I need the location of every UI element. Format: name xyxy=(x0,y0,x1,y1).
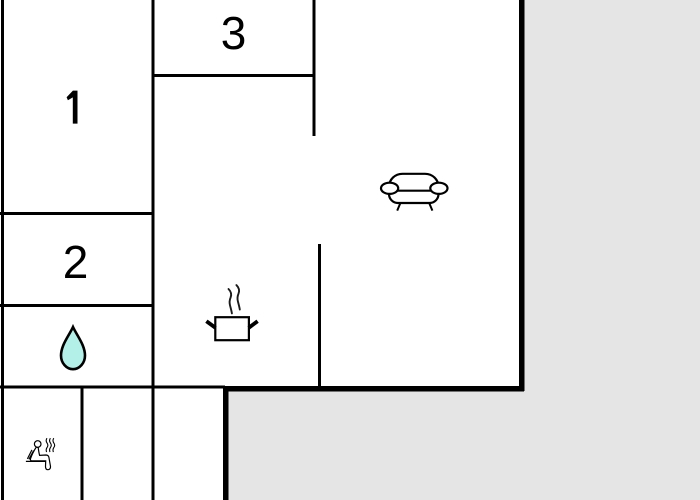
svg-text:2: 2 xyxy=(63,236,89,288)
svg-text:3: 3 xyxy=(221,7,247,59)
